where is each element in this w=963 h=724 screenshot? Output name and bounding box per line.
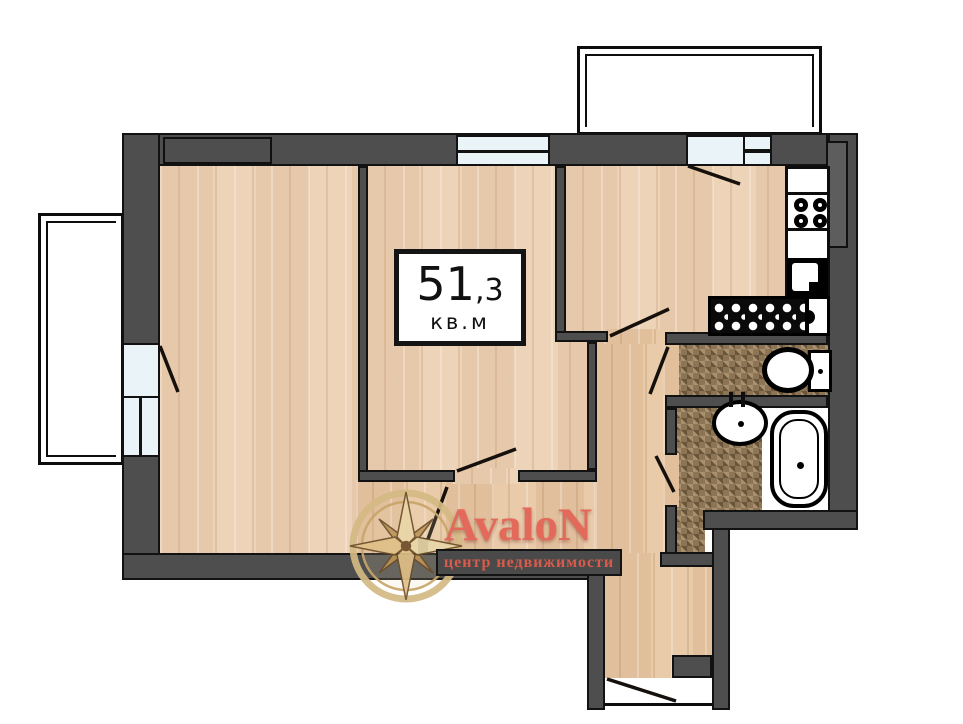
bathtub-inner bbox=[779, 419, 819, 499]
area-label: 51 ,3 кв.м bbox=[394, 249, 526, 346]
bathtub-drain bbox=[797, 462, 804, 469]
window-bedroom-top bbox=[456, 135, 550, 166]
wall-bedroom-kitchen bbox=[555, 166, 566, 342]
window-kitchen-small bbox=[743, 135, 772, 166]
hatch-end-cell bbox=[806, 296, 830, 336]
toilet-tank-button bbox=[818, 369, 823, 374]
area-fraction: ,3 bbox=[475, 276, 504, 306]
window-divider bbox=[458, 150, 548, 153]
stove-burner bbox=[794, 198, 808, 212]
washbasin-faucet bbox=[741, 392, 745, 407]
stove-burner bbox=[813, 198, 827, 212]
wall-bathroom-left-top bbox=[665, 408, 677, 455]
shaft-top-left bbox=[163, 137, 272, 164]
window-divider bbox=[745, 149, 770, 153]
washbasin-drain bbox=[738, 421, 744, 427]
balcony-left-rail bbox=[46, 221, 116, 457]
wall-under-bathroom bbox=[703, 510, 858, 530]
wall-kitchen-bottom bbox=[555, 331, 608, 342]
counter-divider bbox=[788, 228, 827, 231]
toilet-bowl bbox=[762, 347, 814, 393]
wall-bathroom-step-bottom bbox=[660, 552, 714, 567]
stove-burner bbox=[794, 214, 808, 228]
ventilation-hatch bbox=[708, 296, 808, 336]
bathroom-door-opening bbox=[663, 453, 679, 507]
counter-divider bbox=[788, 192, 827, 195]
living-room-floor bbox=[160, 164, 360, 555]
balcony-left bbox=[38, 213, 124, 465]
window-living-left bbox=[122, 396, 160, 457]
kitchen-sink-notch bbox=[809, 282, 818, 291]
brand-tagline: центр недвижимости bbox=[444, 554, 614, 572]
balcony-top bbox=[577, 46, 822, 135]
wall-hallway-left bbox=[587, 553, 605, 710]
kitchen-door-opening bbox=[604, 329, 668, 344]
hatch-pivot bbox=[807, 310, 815, 324]
stove-burner bbox=[813, 214, 827, 228]
window-divider bbox=[139, 398, 142, 455]
bedroom-door-opening bbox=[453, 468, 520, 484]
wc-door-opening bbox=[663, 344, 679, 396]
area-value: 51 bbox=[416, 261, 475, 307]
wall-living-bedroom bbox=[358, 166, 368, 482]
washbasin bbox=[712, 400, 768, 446]
bathroom-floor-step bbox=[675, 510, 705, 554]
balcony-door-kitchen bbox=[686, 135, 745, 166]
bathtub bbox=[770, 410, 828, 508]
entrance-door-opening bbox=[605, 678, 712, 706]
wall-bedroom-bottom-left bbox=[358, 470, 455, 482]
washbasin-faucet bbox=[729, 392, 733, 407]
floor-plan: AvaloN центр недвижимости 51 ,3 кв.м bbox=[0, 0, 963, 724]
wall-hallway-upper-left bbox=[587, 342, 597, 470]
kitchen-sink bbox=[787, 258, 828, 298]
balcony-top-rail bbox=[585, 54, 814, 127]
brand-tagline-banner: центр недвижимости bbox=[436, 549, 622, 576]
wall-bedroom-bottom-right bbox=[518, 470, 597, 482]
living-door-jamb bbox=[418, 538, 428, 553]
wall-hallway-right bbox=[712, 528, 730, 710]
wall-hallway-step bbox=[672, 655, 712, 678]
hallway-upper-floor bbox=[595, 340, 667, 555]
brand-wordmark: AvaloN bbox=[444, 502, 592, 549]
balcony-door-living bbox=[122, 343, 160, 398]
area-unit: кв.м bbox=[430, 310, 490, 334]
